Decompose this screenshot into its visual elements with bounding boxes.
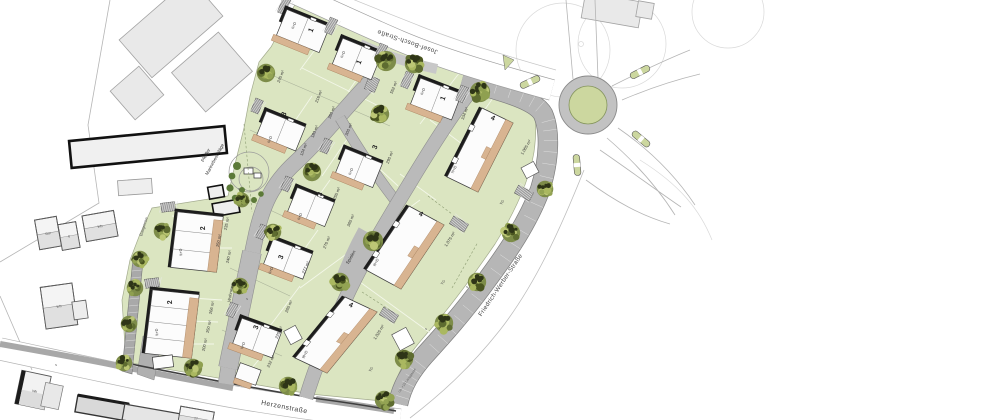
svg-text:S: S [55,363,57,367]
svg-text:II+D: II+D [179,248,184,256]
svg-text:II+D: II+D [155,328,160,336]
svg-text:S: S [246,297,248,301]
svg-text:17: 17 [194,416,199,420]
svg-text:S: S [425,327,427,331]
svg-text:S: S [238,187,240,191]
svg-text:Wh: Wh [56,304,62,309]
svg-text:S: S [466,285,468,289]
svg-text:2: 2 [200,226,207,231]
svg-text:2: 2 [167,300,174,305]
